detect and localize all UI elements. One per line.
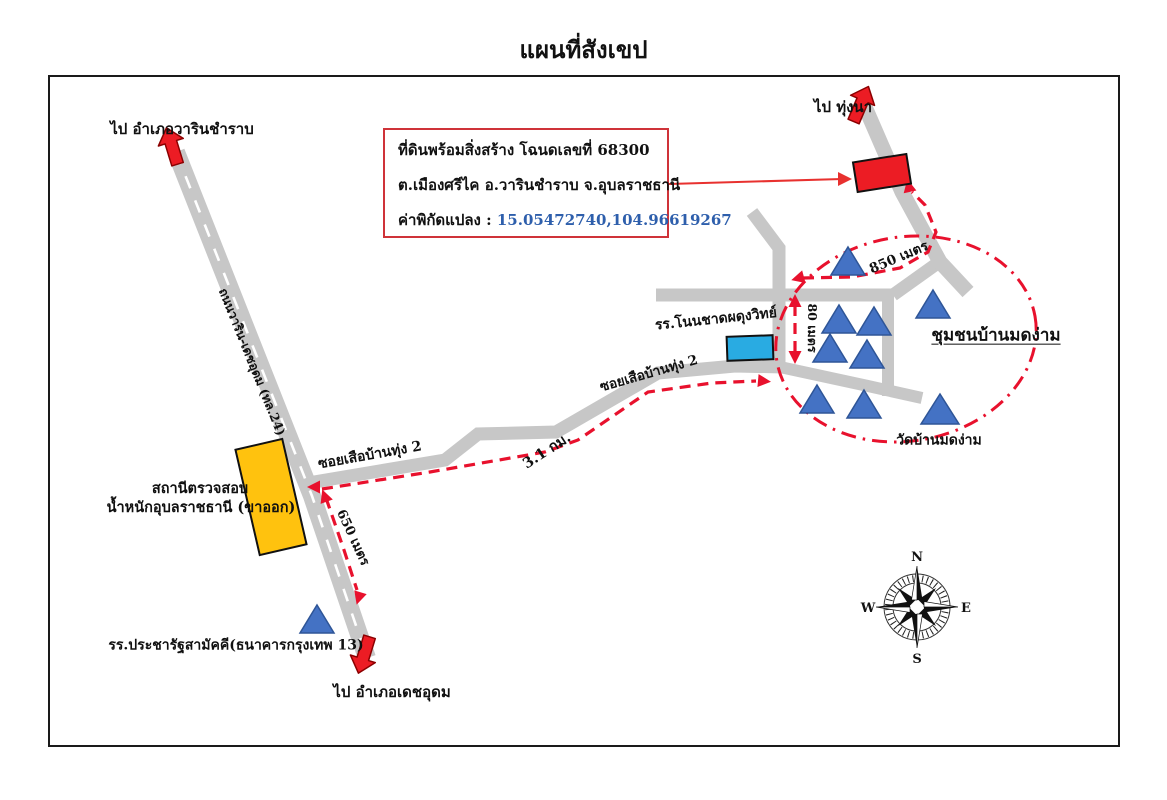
- compass-rose-icon: N S E W: [860, 550, 971, 667]
- parcel-pointer: [669, 172, 852, 186]
- coordinates-label: ค่าพิกัดแปลง :: [398, 211, 497, 229]
- school-pracharat-marker: [300, 605, 334, 633]
- compass-n-label: N: [911, 550, 923, 565]
- to-det-udom-label: ไป อำเภอเดชอุดม: [333, 684, 450, 701]
- parcel-info-line2: ต.เมืองศรีไค อ.วารินชำราบ จ.อุบลราชธานี: [398, 173, 654, 197]
- house-marker: [916, 290, 950, 318]
- to-warin-label: ไป อำเภอวารินชำราบ: [110, 121, 254, 138]
- temple-marker: [921, 394, 959, 424]
- parcel-info-box: ที่ดินพร้อมสิ่งสร้าง โฉนดเลขที่ 68300 ต.…: [383, 128, 669, 238]
- route-arrowhead: [789, 351, 802, 364]
- road-community-lower: [780, 367, 922, 398]
- road-soi-suea-ban-thung: [314, 366, 784, 482]
- house-marker: [847, 390, 881, 418]
- distance-80m-label: 80 เมตร: [805, 303, 819, 352]
- house-marker: [822, 305, 856, 333]
- sketch-map-page: แผนที่สังเขป: [0, 0, 1167, 800]
- house-marker: [831, 247, 865, 275]
- community-label: ชุมชนบ้านมดง่าม: [931, 327, 1060, 346]
- pointer-arrowhead-icon: [838, 172, 852, 186]
- compass-s-label: S: [912, 652, 921, 667]
- coordinates-value: 15.05472740,104.96619267: [497, 211, 732, 229]
- temple-label: วัดบ้านมดง่าม: [896, 433, 982, 448]
- house-marker: [850, 340, 884, 368]
- school-pracharat-label: รร.ประชารัฐสามัคคี(ธนาคารกรุงเทพ 13): [108, 638, 363, 653]
- parcel-info-line1: ที่ดินพร้อมสิ่งสร้าง โฉนดเลขที่ 68300: [398, 138, 654, 162]
- station-label-line1: สถานีตรวจสอบ: [152, 481, 248, 497]
- parcel-info-line3: ค่าพิกัดแปลง : 15.05472740,104.96619267: [398, 208, 654, 232]
- to-fields-label: ไป ทุ่งนา: [814, 99, 872, 116]
- route-arrowhead: [757, 374, 771, 388]
- compass-e-label: E: [961, 601, 971, 616]
- school-nonchat-marker: [727, 335, 774, 361]
- station-label-line2: น้ำหนักอุบลราชธานี (ขาออก): [107, 500, 296, 516]
- house-markers: [300, 247, 959, 633]
- compass-w-label: W: [860, 601, 876, 616]
- house-marker: [800, 385, 834, 413]
